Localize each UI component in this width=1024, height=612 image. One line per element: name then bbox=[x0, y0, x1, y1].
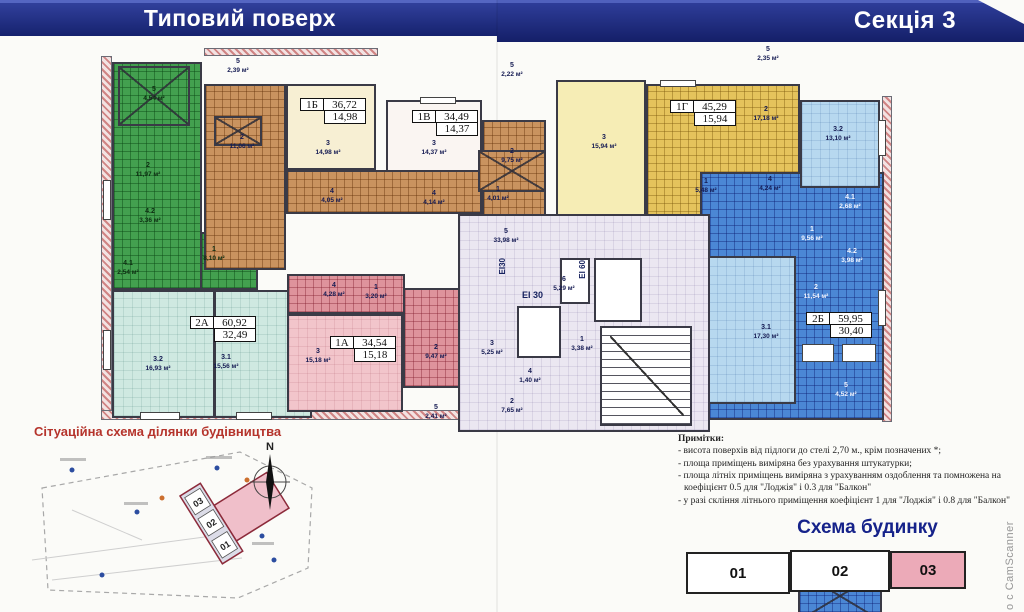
note-line: - висота поверхів від підлоги до стелі 2… bbox=[678, 445, 1014, 457]
note-line: - площа літніх приміщень виміряна з урах… bbox=[678, 470, 1014, 495]
room-label: 44,28 м² bbox=[310, 282, 358, 299]
north-label: N bbox=[266, 441, 274, 453]
apartment-info-1g: 1Г45,29 15,94 bbox=[670, 100, 736, 126]
notes-block: Примітки: - висота поверхів від підлоги … bbox=[678, 433, 1014, 507]
bath-fixture bbox=[842, 344, 876, 362]
notes-title: Примітки: bbox=[678, 433, 1014, 445]
room-label: 3.117,30 м² bbox=[742, 324, 790, 341]
room-label: 211,06 м² bbox=[218, 134, 266, 151]
room-label: 314,98 м² bbox=[304, 140, 352, 157]
room-label: 315,94 м² bbox=[580, 134, 628, 151]
room-label: 18,10 м² bbox=[190, 246, 238, 263]
elevator-shaft-1 bbox=[517, 306, 561, 358]
apartment-info-1b: 1Б36,72 14,98 bbox=[300, 98, 366, 124]
note-line: - площа приміщень виміряна без урахуванн… bbox=[678, 458, 1014, 470]
room-label: 54,52 м² bbox=[822, 382, 870, 399]
scheme-section-02: 02 bbox=[790, 550, 890, 592]
page-title: Типовий поверх bbox=[120, 5, 360, 32]
room-label: 19,56 м² bbox=[788, 226, 836, 243]
room-label: 27,65 м² bbox=[488, 398, 536, 415]
room-label: 29,47 м² bbox=[412, 344, 460, 361]
blue-room-32 bbox=[800, 100, 880, 188]
room-label: 54,54 м² bbox=[130, 86, 178, 103]
room-label: 52,22 м² bbox=[488, 62, 536, 79]
room-label: 13,20 м² bbox=[352, 284, 400, 301]
apartment-info-2a: 2А60,92 32,49 bbox=[190, 316, 256, 342]
room-label: 4.12,54 м² bbox=[104, 260, 152, 277]
room-label: 52,35 м² bbox=[744, 46, 792, 63]
room-label: 29,75 м² bbox=[488, 148, 536, 165]
room-label: 44,05 м² bbox=[308, 188, 356, 205]
elevator-label-el30: ЕІ 30 bbox=[522, 290, 543, 300]
room-label: 44,14 м² bbox=[410, 190, 458, 207]
elevator-label-vertical: ЕІ30 bbox=[498, 258, 507, 274]
room-label: 3.213,10 м² bbox=[814, 126, 862, 143]
staircase bbox=[600, 326, 692, 426]
site-plan-title: Сітуаційна схема ділянки будівництва bbox=[34, 424, 281, 439]
scanned-floor-plan-page: Типовий поверх Секція 3 bbox=[0, 0, 1024, 612]
scheme-section-03-highlighted: 03 bbox=[890, 551, 966, 589]
window-mark bbox=[103, 180, 111, 220]
room-label: 52,41 м² bbox=[412, 404, 460, 421]
room-label: 3.216,93 м² bbox=[134, 356, 182, 373]
room-label: 315,18 м² bbox=[294, 348, 342, 365]
elevator-label-el60: ЕІ 60 bbox=[578, 260, 587, 279]
window-mark bbox=[140, 412, 180, 420]
room-label: 3.115,56 м² bbox=[202, 354, 250, 371]
brown-apartment-block bbox=[204, 84, 286, 270]
window-mark bbox=[878, 120, 886, 156]
room-label: 4.23,36 м² bbox=[126, 208, 174, 225]
apartment-info-2b: 2Б59,95 30,40 bbox=[806, 312, 872, 338]
cream-living-room bbox=[286, 84, 376, 170]
scheme-section-01: 01 bbox=[686, 552, 790, 594]
outer-wall-top bbox=[204, 48, 378, 56]
elevator-shaft-2 bbox=[594, 258, 642, 322]
room-label: 314,37 м² bbox=[410, 140, 458, 157]
room-label: 44,24 м² bbox=[746, 176, 794, 193]
room-label: 217,18 м² bbox=[742, 106, 790, 123]
room-label: 52,39 м² bbox=[214, 58, 262, 75]
room-label: 4.12,68 м² bbox=[826, 194, 874, 211]
window-mark bbox=[878, 290, 886, 326]
room-label: 533,98 м² bbox=[482, 228, 530, 245]
site-building: 03 02 01 bbox=[180, 450, 295, 563]
fold-corner bbox=[978, 0, 1024, 24]
camscanner-watermark: о с CamScanner bbox=[1004, 458, 1016, 610]
window-mark bbox=[660, 80, 696, 87]
building-scheme-title: Схема будинку bbox=[770, 517, 965, 539]
window-mark bbox=[420, 97, 456, 104]
note-line: - у разі скління літнього приміщення кое… bbox=[678, 495, 1014, 507]
room-label: 4.23,98 м² bbox=[828, 248, 876, 265]
room-label: 211,97 м² bbox=[124, 162, 172, 179]
bath-fixture bbox=[802, 344, 834, 362]
room-label: 14,01 м² bbox=[474, 186, 522, 203]
window-mark bbox=[103, 330, 111, 370]
room-label: 41,40 м² bbox=[506, 368, 554, 385]
room-label: 211,54 м² bbox=[792, 284, 840, 301]
room-label: 13,38 м² bbox=[558, 336, 606, 353]
apartment-info-1v: 1В34,49 14,37 bbox=[412, 110, 478, 136]
room-label: 35,25 м² bbox=[468, 340, 516, 357]
window-mark bbox=[236, 412, 272, 420]
site-plan-map: 03 02 01 N bbox=[12, 440, 342, 612]
room-label: 15,48 м² bbox=[682, 178, 730, 195]
